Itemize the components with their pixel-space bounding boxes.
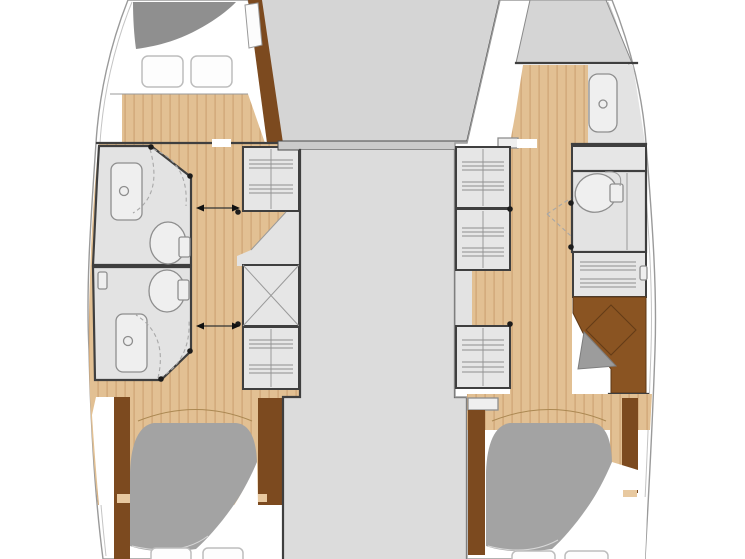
stern-hatch [565, 551, 608, 559]
cabinet-end [468, 398, 498, 410]
door-hinge [568, 200, 574, 206]
drawer-handle [640, 266, 647, 280]
port-aft-bathroom [93, 267, 193, 382]
entry-landing-step [472, 271, 510, 325]
door-hinge [568, 244, 574, 250]
stern-hatch [512, 551, 555, 559]
starboard-storage-column [456, 147, 517, 388]
floor-plan-canvas [0, 0, 745, 559]
door-hinge [148, 144, 154, 150]
door-hinge [235, 209, 241, 215]
starboard-door-gap [517, 139, 537, 148]
door-hinge [187, 348, 193, 354]
vanity-basin [120, 187, 129, 196]
shower-tray [589, 74, 617, 132]
toilet-cistern [610, 184, 623, 202]
berth-post [622, 490, 637, 498]
starboard-outboard-shelves [573, 252, 647, 297]
toilet-cistern [179, 237, 190, 257]
stern-hatch [203, 548, 243, 559]
shelf-unit [573, 252, 646, 297]
berth-side-trim [258, 398, 283, 505]
starboard-hull [455, 0, 656, 559]
vanity-basin [124, 337, 133, 346]
stern-hatch [151, 548, 191, 559]
central-walkway [283, 150, 467, 559]
starboard-aft-cabin [467, 394, 652, 559]
catamaran-floor-plan [0, 0, 745, 559]
door-hinge [507, 321, 513, 327]
berth-side-trim [468, 410, 485, 555]
toilet-cistern [178, 280, 189, 300]
port-bow-hatch-1 [142, 56, 183, 87]
step-threshold [278, 141, 470, 150]
door-hinge [187, 173, 193, 179]
port-forward-door-gap [212, 139, 231, 147]
berth-post [117, 494, 131, 503]
foredeck-area [262, 0, 500, 143]
wall-fitting [98, 272, 107, 289]
port-bow-hatch-2 [191, 56, 232, 87]
door-hinge [158, 376, 164, 382]
door-hinge [507, 206, 513, 212]
port-storage-column [235, 147, 299, 389]
port-hull [88, 0, 300, 559]
berth-side-trim [114, 397, 130, 559]
cabinet [572, 146, 646, 172]
